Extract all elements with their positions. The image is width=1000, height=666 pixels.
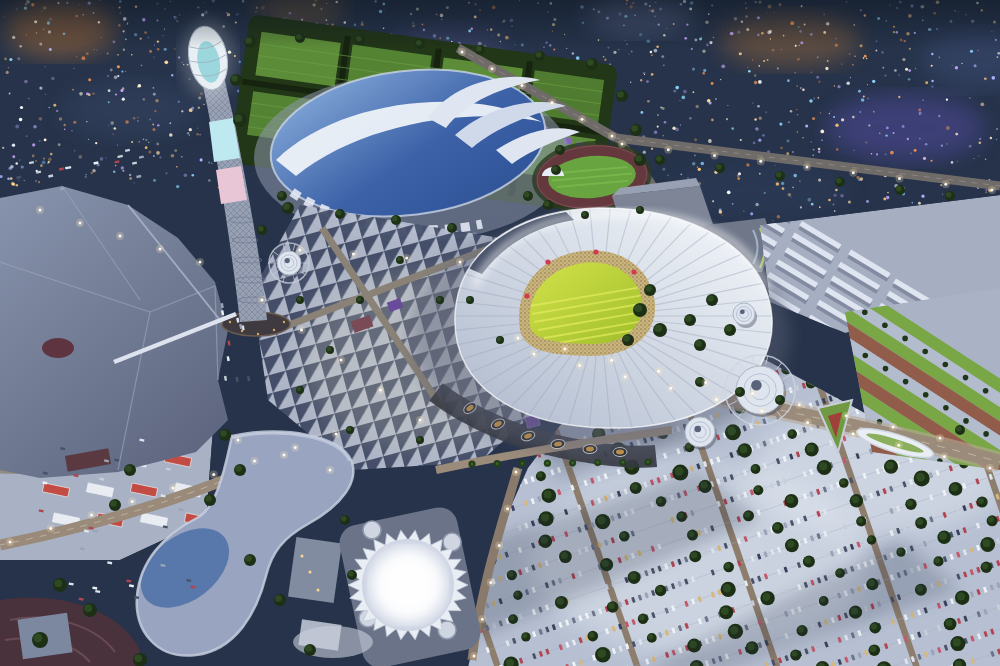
aerial-scene: [0, 0, 1000, 666]
horizon-fade: [0, 0, 1000, 48]
dome-glow: [374, 551, 442, 619]
mall-roof-oval: [42, 338, 74, 358]
hall-annex: [288, 537, 342, 603]
